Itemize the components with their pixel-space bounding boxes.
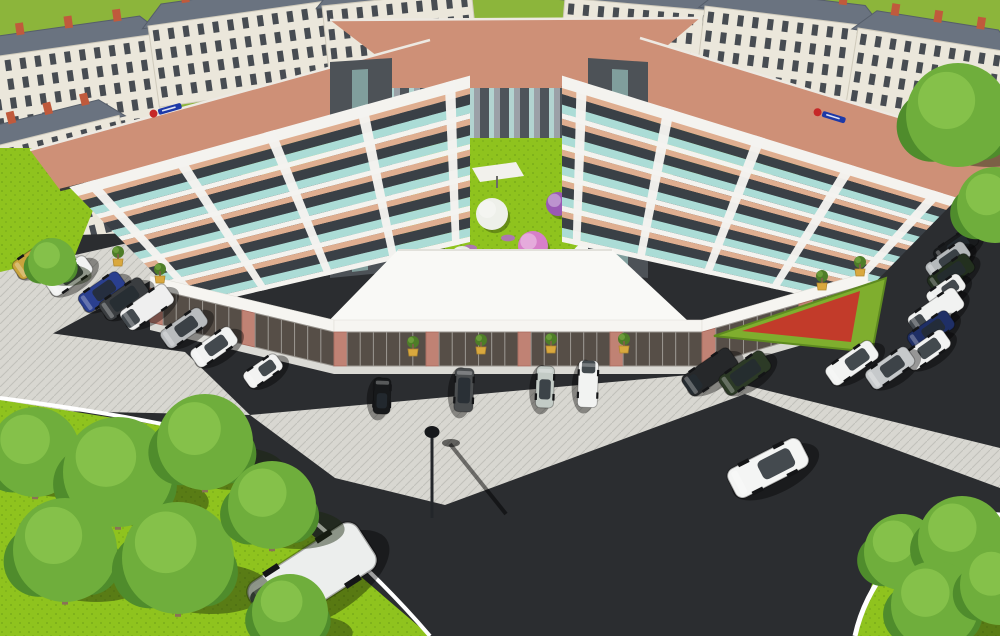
tree-canopy-highlight: [918, 72, 975, 129]
tree-canopy-highlight: [873, 520, 915, 562]
flowering-tree-highlight: [548, 194, 561, 207]
storefront-glass-panel: [281, 319, 294, 356]
storefront-glass-panel: [689, 332, 702, 366]
lamp-pole: [431, 434, 434, 518]
car-hood-highlight: [376, 381, 389, 385]
car-wheel: [453, 397, 456, 404]
pot-shrub-highlight: [855, 257, 861, 263]
retail-brick-pier: [334, 332, 347, 366]
tree-canopy-highlight: [34, 242, 60, 268]
storefront-glass-panel: [531, 332, 544, 366]
storefront-glass-panel: [439, 332, 452, 366]
pot-body: [113, 259, 123, 266]
tree-canopy-highlight: [928, 503, 976, 551]
car-wheel: [535, 393, 538, 400]
tree-canopy-highlight: [261, 580, 303, 622]
storefront-glass-panel: [373, 332, 386, 366]
flowering-tree-highlight: [478, 200, 496, 218]
planter-pot: [112, 246, 124, 266]
pot-stem: [117, 254, 119, 259]
pot-body: [408, 349, 418, 356]
pot-shrub-highlight: [155, 264, 161, 270]
car-glass: [539, 379, 551, 399]
car-glass: [376, 393, 387, 409]
storefront-glass-panel: [505, 332, 518, 366]
storefront-glass-panel: [676, 332, 689, 366]
flowering-tree-highlight: [520, 233, 537, 250]
planter-pot: [816, 270, 828, 290]
planter-pot: [618, 333, 630, 353]
retail-fascia: [334, 320, 702, 332]
pot-body: [476, 347, 486, 354]
flower-patch: [501, 235, 515, 242]
tree-canopy-highlight: [238, 468, 286, 516]
storefront-glass-panel: [649, 332, 662, 366]
pot-shrub-highlight: [476, 335, 482, 341]
storefront-glass-panel: [321, 329, 334, 366]
pot-shrub-highlight: [113, 247, 119, 253]
storefront-glass-panel: [387, 332, 400, 366]
chimney: [15, 22, 25, 35]
chimney: [64, 16, 74, 29]
pot-body: [817, 283, 827, 290]
tree-canopy-highlight: [0, 415, 50, 465]
pot-body: [619, 346, 629, 353]
pot-stem: [550, 341, 552, 346]
storefront-glass-panel: [308, 326, 321, 363]
planter-pot: [154, 263, 166, 283]
storefront-glass-panel: [597, 332, 610, 366]
pot-body: [546, 346, 556, 353]
retail-brick-pier: [242, 310, 255, 347]
planter-pot: [475, 334, 487, 354]
car-wheel: [597, 370, 599, 376]
chimney: [112, 9, 122, 22]
storefront-glass-panel: [452, 332, 465, 366]
pot-stem: [623, 341, 625, 346]
scene-svg: [0, 0, 1000, 636]
car-wheel: [552, 394, 555, 401]
retail-brick-pier: [426, 332, 439, 366]
car-wheel: [535, 373, 538, 380]
storefront-glass-panel: [636, 332, 649, 366]
car-hood-highlight: [581, 363, 597, 367]
lamp-head-shadow: [442, 439, 460, 447]
pot-stem: [821, 278, 823, 283]
storefront-glass-panel: [295, 323, 308, 360]
storefront-glass-panel: [557, 332, 570, 366]
storefront-glass-panel: [360, 332, 373, 366]
car-wheel: [596, 392, 598, 398]
pot-stem: [412, 344, 414, 349]
car-wheel: [472, 377, 475, 384]
storefront-glass-panel: [663, 332, 676, 366]
tree-canopy-highlight: [76, 426, 136, 487]
planter-pot: [854, 256, 866, 276]
car-wheel: [373, 384, 376, 391]
tree-canopy-highlight: [901, 568, 949, 616]
car-wheel: [372, 401, 375, 408]
car-wheel: [553, 374, 556, 381]
storefront-sidewalk: [334, 366, 702, 374]
pot-shrub-highlight: [408, 337, 414, 343]
pot-stem: [480, 342, 482, 347]
retail-brick-pier: [518, 332, 531, 366]
render-canvas: [0, 0, 1000, 636]
tree-canopy-highlight: [25, 507, 82, 564]
pot-stem: [859, 264, 861, 269]
planter-pot: [407, 336, 419, 356]
car-glass: [457, 377, 470, 403]
lamp-head: [425, 426, 440, 438]
pot-body: [155, 276, 165, 283]
umbrella-pole: [496, 176, 498, 188]
pot-shrub-highlight: [619, 334, 625, 340]
pot-body: [855, 269, 865, 276]
pot-shrub-highlight: [817, 271, 823, 277]
car-wheel: [472, 397, 475, 404]
car-hood-highlight: [457, 371, 472, 375]
car-wheel: [577, 392, 579, 398]
car-wheel: [389, 401, 392, 408]
pot-shrub-highlight: [546, 334, 552, 340]
storefront-glass-panel: [255, 313, 268, 350]
tree-canopy-highlight: [135, 512, 197, 574]
car-wheel: [577, 369, 579, 375]
pot-stem: [159, 271, 161, 276]
car-hood-highlight: [538, 369, 552, 373]
car-wheel: [389, 384, 392, 391]
storefront-glass-panel: [268, 316, 281, 353]
planter-pot: [545, 333, 557, 353]
car-wheel: [454, 376, 457, 383]
tree-canopy-highlight: [168, 402, 221, 455]
storefront-glass-panel: [347, 332, 360, 366]
storefront-glass-panel: [492, 332, 505, 366]
